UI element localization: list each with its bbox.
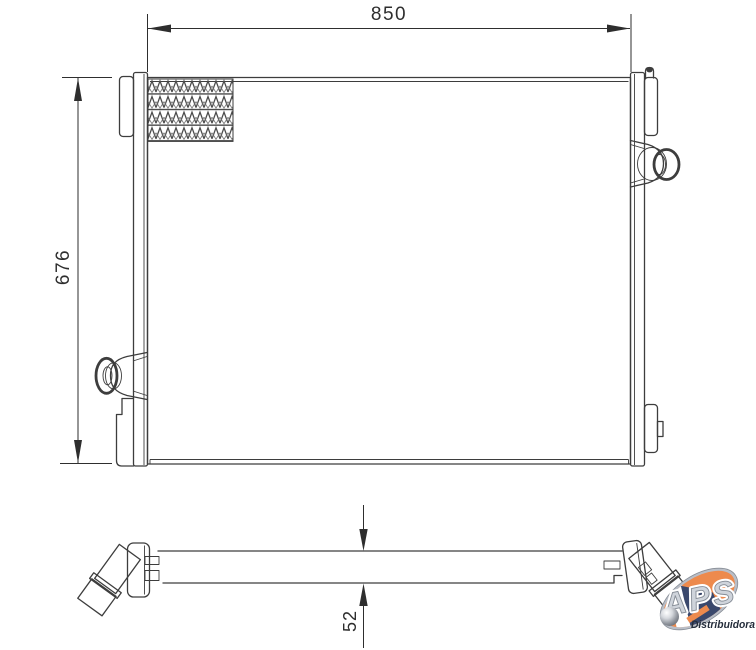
arrow-up-icon [74,78,82,101]
dim-676-label: 676 [53,249,74,285]
right-tank [631,73,645,467]
left-tank [134,73,148,467]
fin-pattern [148,79,233,141]
left-hose-connection [96,353,147,400]
left-tab-upper [145,557,159,565]
dim-850-label: 850 [371,4,407,25]
arrow-down-icon [359,529,367,551]
dim-52-label: 52 [340,610,360,632]
front-view [96,67,679,466]
right-bracket-tab [658,422,664,437]
logo-sphere [660,607,679,626]
dimension-thickness: 52 [340,505,368,648]
filler-nub-cap [646,67,652,72]
radiator-technical-drawing: 850 676 [0,0,756,650]
arrow-right-icon [607,25,630,33]
right-hose-connection [631,141,680,188]
left-bottom-bracket [117,399,134,467]
right-top-bracket [645,78,658,136]
aps-logo: APS APS Distribuidora [650,556,755,643]
dimension-height: 676 [53,78,112,464]
left-top-bracket [120,77,134,137]
logo-subtitle-text: Distribuidora [691,619,755,631]
left-outlet-pipe [76,542,143,617]
right-bottom-bracket [645,405,658,453]
arrow-up-icon [359,584,367,607]
left-tab-lower [145,571,159,581]
arrow-down-icon [74,440,82,463]
arrow-left-icon [148,25,171,33]
technical-drawing-page: 850 676 [0,0,756,650]
right-tab [604,561,620,569]
profile-view [76,540,694,617]
profile-bottom-line [163,576,622,584]
core-bottom-inner-line [150,460,629,464]
left-end-cap [128,543,150,597]
dimension-width: 850 [148,4,632,72]
